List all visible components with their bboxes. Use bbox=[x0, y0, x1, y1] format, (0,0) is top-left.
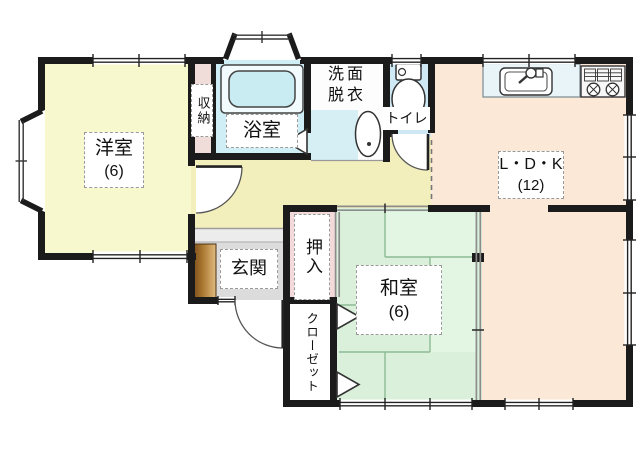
window-ldk-right-upper bbox=[623, 115, 636, 200]
washroom-name-top: 洗面 bbox=[328, 65, 366, 86]
label-closet: クローゼット bbox=[296, 305, 326, 400]
western-room-size: (6) bbox=[104, 162, 124, 183]
label-ldk: L・D・K (12) bbox=[498, 151, 564, 199]
label-storage: 収納 bbox=[191, 84, 213, 137]
label-entrance: 玄関 bbox=[220, 249, 278, 289]
ldk-name: L・D・K bbox=[499, 155, 562, 176]
ldk-size: (12) bbox=[518, 176, 545, 196]
bathroom-name: 浴室 bbox=[243, 119, 281, 144]
bathtub-icon bbox=[221, 65, 303, 113]
label-japanese-room: 和室 (6) bbox=[356, 265, 442, 335]
storage-name: 収納 bbox=[194, 96, 211, 126]
label-washroom: 洗面 脱衣 bbox=[310, 62, 384, 110]
western-room-name: 洋室 bbox=[95, 137, 133, 162]
washroom-accent bbox=[308, 110, 358, 160]
label-western-room: 洋室 (6) bbox=[84, 132, 144, 188]
shoe-cabinet-icon bbox=[194, 244, 217, 302]
window-entrance-sidelight bbox=[218, 296, 235, 305]
label-oshiire: 押入 bbox=[294, 214, 330, 300]
window-western-bottom bbox=[93, 250, 187, 263]
window-japanese-bottom bbox=[340, 398, 472, 410]
washbasin-icon bbox=[356, 112, 381, 157]
door-entrance bbox=[235, 300, 283, 348]
label-bathroom: 浴室 bbox=[226, 114, 298, 148]
oshiire-name: 押入 bbox=[301, 238, 323, 276]
window-ldk-bottom bbox=[505, 398, 573, 410]
window-ldk-right-lower bbox=[623, 240, 636, 345]
label-toilet: トイレ bbox=[383, 107, 430, 130]
toilet-name: トイレ bbox=[386, 109, 428, 127]
japanese-room-size: (6) bbox=[389, 301, 410, 323]
bay-window-western bbox=[16, 110, 46, 212]
japanese-room-name: 和室 bbox=[380, 277, 418, 302]
floor-plan: 洋室 (6) 収納 浴室 洗面 脱衣 トイレ L・D・K (12) 玄関 押入 … bbox=[0, 0, 640, 453]
entrance-step bbox=[191, 228, 286, 242]
washroom-name-bottom: 脱衣 bbox=[328, 86, 366, 107]
entrance-name: 玄関 bbox=[231, 257, 267, 280]
stove-icon bbox=[581, 66, 625, 97]
kitchen-sink-icon bbox=[500, 68, 552, 95]
closet-name: クローゼット bbox=[303, 312, 319, 393]
bay-window-bathroom bbox=[223, 31, 301, 60]
